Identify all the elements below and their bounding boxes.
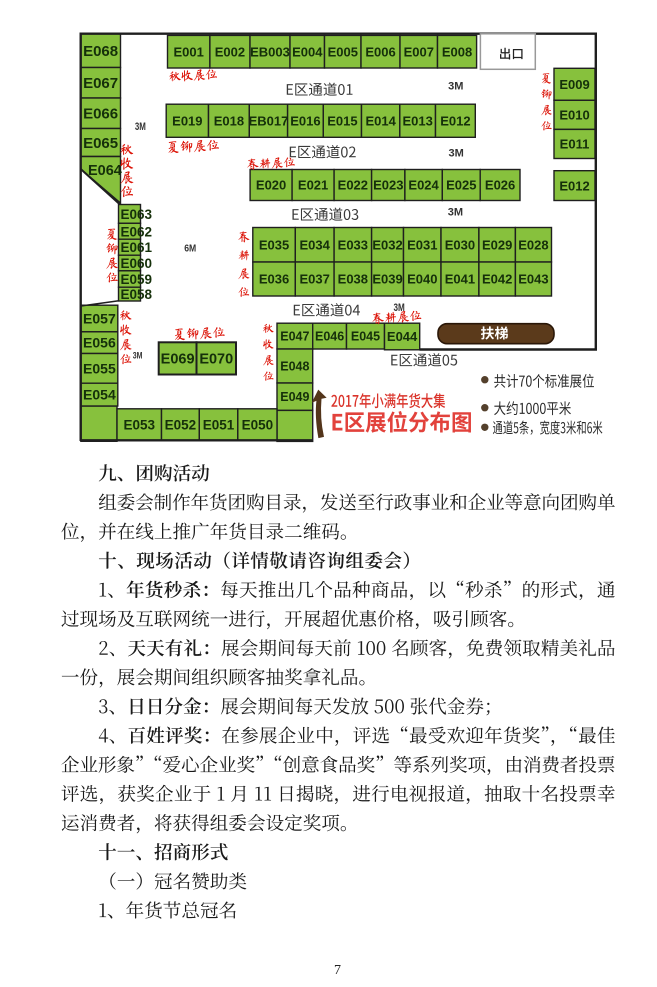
- svg-text:E066: E066: [83, 106, 118, 123]
- svg-text:E037: E037: [300, 272, 330, 287]
- svg-text:E039: E039: [372, 272, 402, 287]
- svg-text:E055: E055: [83, 360, 116, 376]
- svg-text:E007: E007: [404, 44, 434, 59]
- svg-text:E050: E050: [242, 417, 274, 432]
- svg-text:E036: E036: [259, 272, 289, 287]
- svg-text:E069: E069: [161, 352, 195, 368]
- svg-text:E062: E062: [121, 224, 153, 239]
- svg-text:E032: E032: [372, 237, 402, 252]
- svg-text:E057: E057: [83, 311, 116, 327]
- svg-text:E022: E022: [338, 178, 368, 193]
- svg-text:E049: E049: [280, 390, 309, 404]
- svg-text:E067: E067: [83, 75, 118, 92]
- svg-text:E026: E026: [485, 178, 515, 193]
- svg-text:3M: 3M: [448, 207, 463, 219]
- svg-text:E020: E020: [256, 178, 286, 193]
- svg-text:E038: E038: [338, 272, 368, 287]
- svg-text:3M: 3M: [448, 81, 463, 93]
- svg-text:E043: E043: [518, 272, 548, 287]
- svg-text:E070: E070: [199, 352, 233, 368]
- svg-text:E029: E029: [482, 237, 512, 252]
- svg-text:E040: E040: [407, 272, 437, 287]
- svg-text:3M: 3M: [449, 148, 464, 160]
- svg-text:E047: E047: [280, 330, 309, 344]
- svg-text:E045: E045: [351, 330, 380, 344]
- svg-text:E004: E004: [292, 44, 323, 59]
- svg-text:E013: E013: [402, 113, 432, 128]
- svg-text:E024: E024: [408, 178, 439, 193]
- svg-text:E042: E042: [482, 272, 512, 287]
- svg-text:E054: E054: [83, 387, 116, 403]
- svg-text:E014: E014: [365, 113, 396, 128]
- svg-text:E034: E034: [300, 237, 331, 252]
- svg-text:E021: E021: [298, 178, 328, 193]
- svg-text:E030: E030: [445, 237, 475, 252]
- svg-text:E031: E031: [407, 237, 437, 252]
- svg-text:E018: E018: [214, 113, 244, 128]
- svg-text:E052: E052: [165, 417, 197, 432]
- svg-text:E063: E063: [121, 207, 153, 222]
- svg-text:E046: E046: [315, 330, 344, 344]
- svg-text:E016: E016: [290, 113, 320, 128]
- svg-text:E058: E058: [121, 287, 153, 302]
- svg-text:E059: E059: [121, 272, 153, 287]
- svg-text:E033: E033: [338, 237, 368, 252]
- svg-text:E025: E025: [446, 178, 476, 193]
- svg-text:E012: E012: [440, 113, 470, 128]
- svg-text:E064: E064: [88, 163, 122, 179]
- svg-text:E061: E061: [121, 240, 153, 255]
- svg-text:E065: E065: [83, 135, 118, 152]
- svg-text:E002: E002: [215, 44, 245, 59]
- svg-text:E010: E010: [559, 108, 589, 123]
- svg-text:EB003: EB003: [250, 44, 290, 59]
- svg-text:E048: E048: [280, 360, 309, 374]
- svg-text:E060: E060: [121, 256, 153, 271]
- svg-text:3M: 3M: [135, 121, 146, 133]
- svg-text:E006: E006: [365, 44, 395, 59]
- svg-text:E012: E012: [559, 178, 589, 193]
- svg-text:EB017: EB017: [249, 113, 289, 128]
- svg-text:E044: E044: [387, 329, 418, 344]
- svg-text:E068: E068: [83, 43, 118, 60]
- svg-text:E056: E056: [83, 335, 116, 351]
- svg-text:E009: E009: [559, 77, 589, 92]
- svg-text:E051: E051: [203, 417, 235, 432]
- svg-text:E023: E023: [373, 178, 403, 193]
- svg-text:E008: E008: [442, 44, 472, 59]
- svg-text:7: 7: [334, 963, 341, 978]
- svg-text:E028: E028: [518, 237, 548, 252]
- svg-text:E019: E019: [172, 113, 202, 128]
- svg-text:E015: E015: [327, 113, 357, 128]
- svg-text:E035: E035: [259, 237, 289, 252]
- svg-text:6M: 6M: [184, 244, 196, 255]
- svg-text:E041: E041: [445, 272, 475, 287]
- svg-text:E053: E053: [123, 417, 155, 432]
- svg-text:E011: E011: [560, 137, 590, 152]
- svg-text:3M: 3M: [133, 351, 143, 362]
- svg-text:E005: E005: [328, 44, 358, 59]
- svg-text:E001: E001: [174, 44, 204, 59]
